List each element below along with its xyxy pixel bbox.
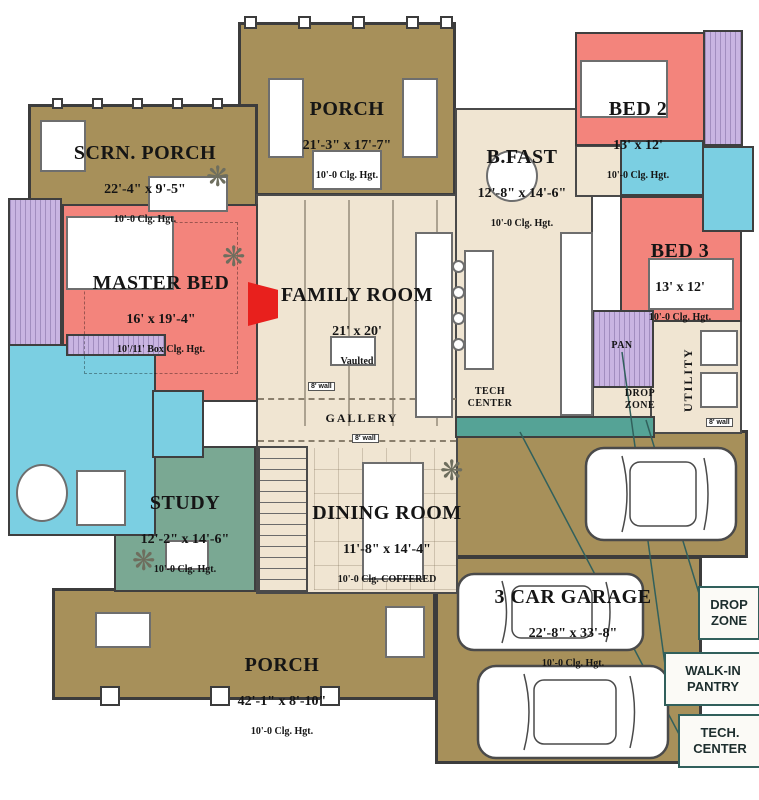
room-name: PORCH [258,99,436,121]
room-ceiling: 10'-0 Clg. Hgt. [452,219,592,230]
porch-column [132,98,143,109]
drop-zone-label: DROP ZONE [612,388,668,411]
room-name: BED 2 [582,99,694,121]
porch-column [212,98,223,109]
room-dims: 21'-3" x 17'-7" [258,138,436,153]
porch-bottom-label: PORCH 42'-1" x 8'-10" 10'-0 Clg. Hgt. [198,638,366,755]
room-ceiling: 10'-0 Clg. Hgt. [198,727,366,738]
room-name: SCRN. PORCH [35,143,255,165]
porch-column [298,16,311,29]
porch-column [172,98,183,109]
room-name: BED 3 [612,241,748,263]
room-ceiling: 10'-0 Clg. Hgt. [612,313,748,324]
porch-column [100,686,120,706]
room-ceiling: 10'-0 Clg. Hgt. [35,215,255,226]
hall-bath-area [702,146,754,232]
bed2-label: BED 2 13' x 12' 10'-0 Clg. Hgt. [582,82,694,199]
room-name: MASTER BED [70,273,252,295]
garage-area-upper [435,430,748,558]
dryer-icon [700,372,738,408]
room-name: PORCH [198,655,366,677]
room-dims: 22'-8" x 33'-8" [478,626,668,641]
callout-walk-in-pantry: WALK-IN PANTRY [664,652,759,706]
room-name: 3 CAR GARAGE [478,587,668,609]
room-dims: 11'-8" x 14'-4" [312,542,462,557]
island-stool-icon [452,286,465,299]
master-bed-label: MASTER BED 16' x 19'-4" 10'/11' Box Clg.… [70,256,252,373]
pantry-label: PAN [600,340,644,352]
wall-tag: 8' wall [706,418,733,427]
room-dims: 12'-2" x 14'-6" [110,532,260,547]
dining-label: DINING ROOM 11'-8" x 14'-4" 10'-0 Clg. C… [312,486,462,603]
room-ceiling: 10'-0 Clg. Hgt. [478,659,668,670]
mudroom-bench [455,416,655,438]
master-wc-area [152,390,204,458]
room-dims: 42'-1" x 8'-10" [198,694,366,709]
room-name: B.FAST [452,147,592,169]
callout-drop-zone: DROP ZONE [698,586,759,640]
porch-column [92,98,103,109]
staircase [258,446,308,592]
room-name: FAMILY ROOM [262,285,452,307]
room-dims: 22'-4" x 9'-5" [35,182,255,197]
family-room-label: FAMILY ROOM 21' x 20' Vaulted [262,268,452,385]
utility-label: UTILITY [682,336,696,424]
tub-icon [16,464,68,522]
porch-column [244,16,257,29]
island-stool-icon [452,260,465,273]
room-ceiling: Vaulted [262,357,452,368]
room-ceiling: 10'-0 Clg. Hgt. [110,565,260,576]
porch-chair-icon [385,606,425,658]
room-ceiling: 10'/11' Box Clg. Hgt. [70,345,252,356]
porch-column [352,16,365,29]
room-dims: 13' x 12' [582,138,694,153]
scrn-porch-label: SCRN. PORCH 22'-4" x 9'-5" 10'-0 Clg. Hg… [35,126,255,243]
kitchen-island-icon [464,250,494,370]
room-dims: 12'-8" x 14'-6" [452,186,592,201]
porch-top-label: PORCH 21'-3" x 17'-7" 10'-0 Clg. Hgt. [258,82,436,199]
tech-center-label: TECH CENTER [460,386,520,409]
porch-column [406,16,419,29]
callout-tech-center: TECH. CENTER [678,714,759,768]
porch-column [52,98,63,109]
island-stool-icon [452,338,465,351]
porch-chair-icon [95,612,151,648]
bed3-label: BED 3 13' x 12' 10'-0 Clg. Hgt. [612,224,748,341]
room-ceiling: 10'-0 Clg. Hgt. [582,171,694,182]
kitchen-counter-icon [560,232,593,416]
shrub-icon: ❋ [440,458,463,486]
room-name: DINING ROOM [312,503,462,525]
room-ceiling: 10'-0 Clg. Hgt. [258,171,436,182]
room-name: STUDY [110,493,260,515]
room-ceiling: 10'-0 Clg. COFFERED [312,575,462,586]
garage-label: 3 CAR GARAGE 22'-8" x 33'-8" 10'-0 Clg. … [478,570,668,687]
wall-tag: 8' wall [308,382,335,391]
island-stool-icon [452,312,465,325]
room-dims: 13' x 12' [612,280,748,295]
wall-tag: 8' wall [352,434,379,443]
porch-column [440,16,453,29]
bed2-closet-area [703,30,743,146]
gallery-label: GALLERY [322,412,402,426]
room-dims: 16' x 19'-4" [70,312,252,327]
room-dims: 21' x 20' [262,324,452,339]
floor-plan: ❋ ❋ ❋ ❋ SCRN. PORCH 22'- [0,0,759,800]
study-label: STUDY 12'-2" x 14'-6" 10'-0 Clg. Hgt. [110,476,260,593]
bfast-label: B.FAST 12'-8" x 14'-6" 10'-0 Clg. Hgt. [452,130,592,247]
